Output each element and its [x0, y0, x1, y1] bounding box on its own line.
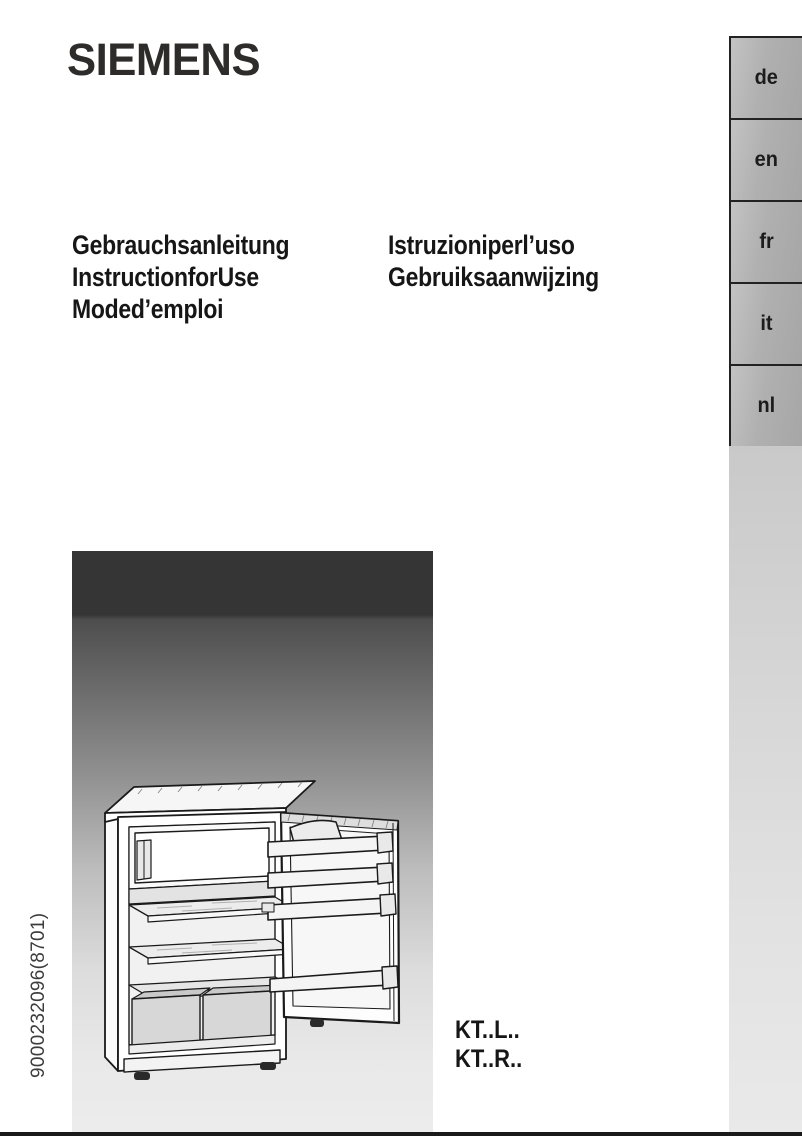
siemens-logo: SIEMENS	[67, 34, 260, 86]
refrigerator-illustration	[72, 551, 433, 1132]
title-line-istruzioni: Istruzioniperl’uso	[388, 229, 599, 261]
title-line-instruction-for-use: InstructionforUse	[72, 261, 289, 293]
manual-cover-page: SIEMENS de en fr it nl Gebrauchsanleitun…	[0, 0, 802, 1136]
title-block-right: Istruzioniperl’uso Gebruiksaanwijzing	[388, 229, 599, 293]
title-block-left: Gebrauchsanleitung InstructionforUse Mod…	[72, 229, 289, 325]
title-line-mode-demploi: Moded’emploi	[72, 293, 289, 325]
model-kt-r: KT..R..	[455, 1045, 522, 1074]
language-tab-stack: de en fr it nl	[729, 36, 802, 448]
thermostat-detail	[262, 903, 274, 912]
document-code-vertical: 9000232096(8701)	[28, 913, 50, 1078]
product-photo-panel	[72, 551, 433, 1132]
model-numbers: KT..L.. KT..R..	[455, 1016, 522, 1074]
tab-language-fr[interactable]: fr	[731, 202, 802, 284]
tab-language-nl[interactable]: nl	[731, 366, 802, 448]
title-line-gebrauchsanleitung: Gebrauchsanleitung	[72, 229, 289, 261]
tab-language-de[interactable]: de	[731, 38, 802, 120]
tab-language-en[interactable]: en	[731, 120, 802, 202]
bottom-rule	[0, 1132, 802, 1136]
model-kt-l: KT..L..	[455, 1016, 522, 1045]
crisper-section	[129, 977, 290, 1054]
tab-language-it[interactable]: it	[731, 284, 802, 366]
title-line-gebruiksaanwijzing: Gebruiksaanwijzing	[388, 261, 599, 293]
side-gray-column	[729, 446, 802, 1132]
freezer-compartment	[129, 822, 275, 904]
